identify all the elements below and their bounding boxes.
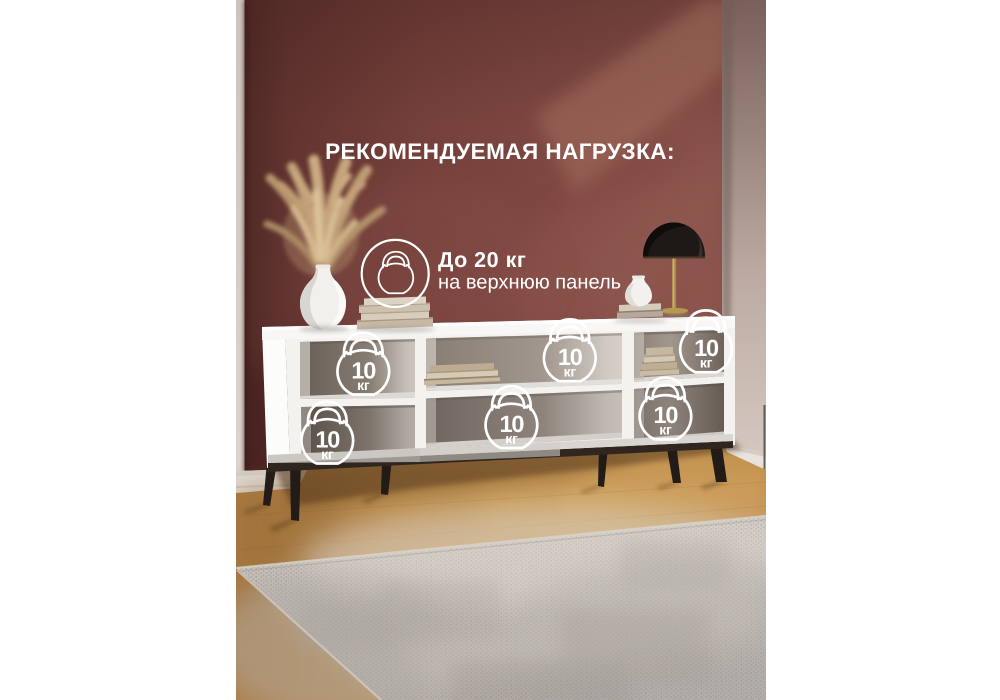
svg-text:РЕКОМЕНДУЕМАЯ НАГРУЗКА:: РЕКОМЕНДУЕМАЯ НАГРУЗКА: (325, 139, 675, 164)
svg-text:До 20 кг: До 20 кг (438, 248, 526, 272)
svg-text:на верхнюю панель: на верхнюю панель (438, 272, 621, 294)
